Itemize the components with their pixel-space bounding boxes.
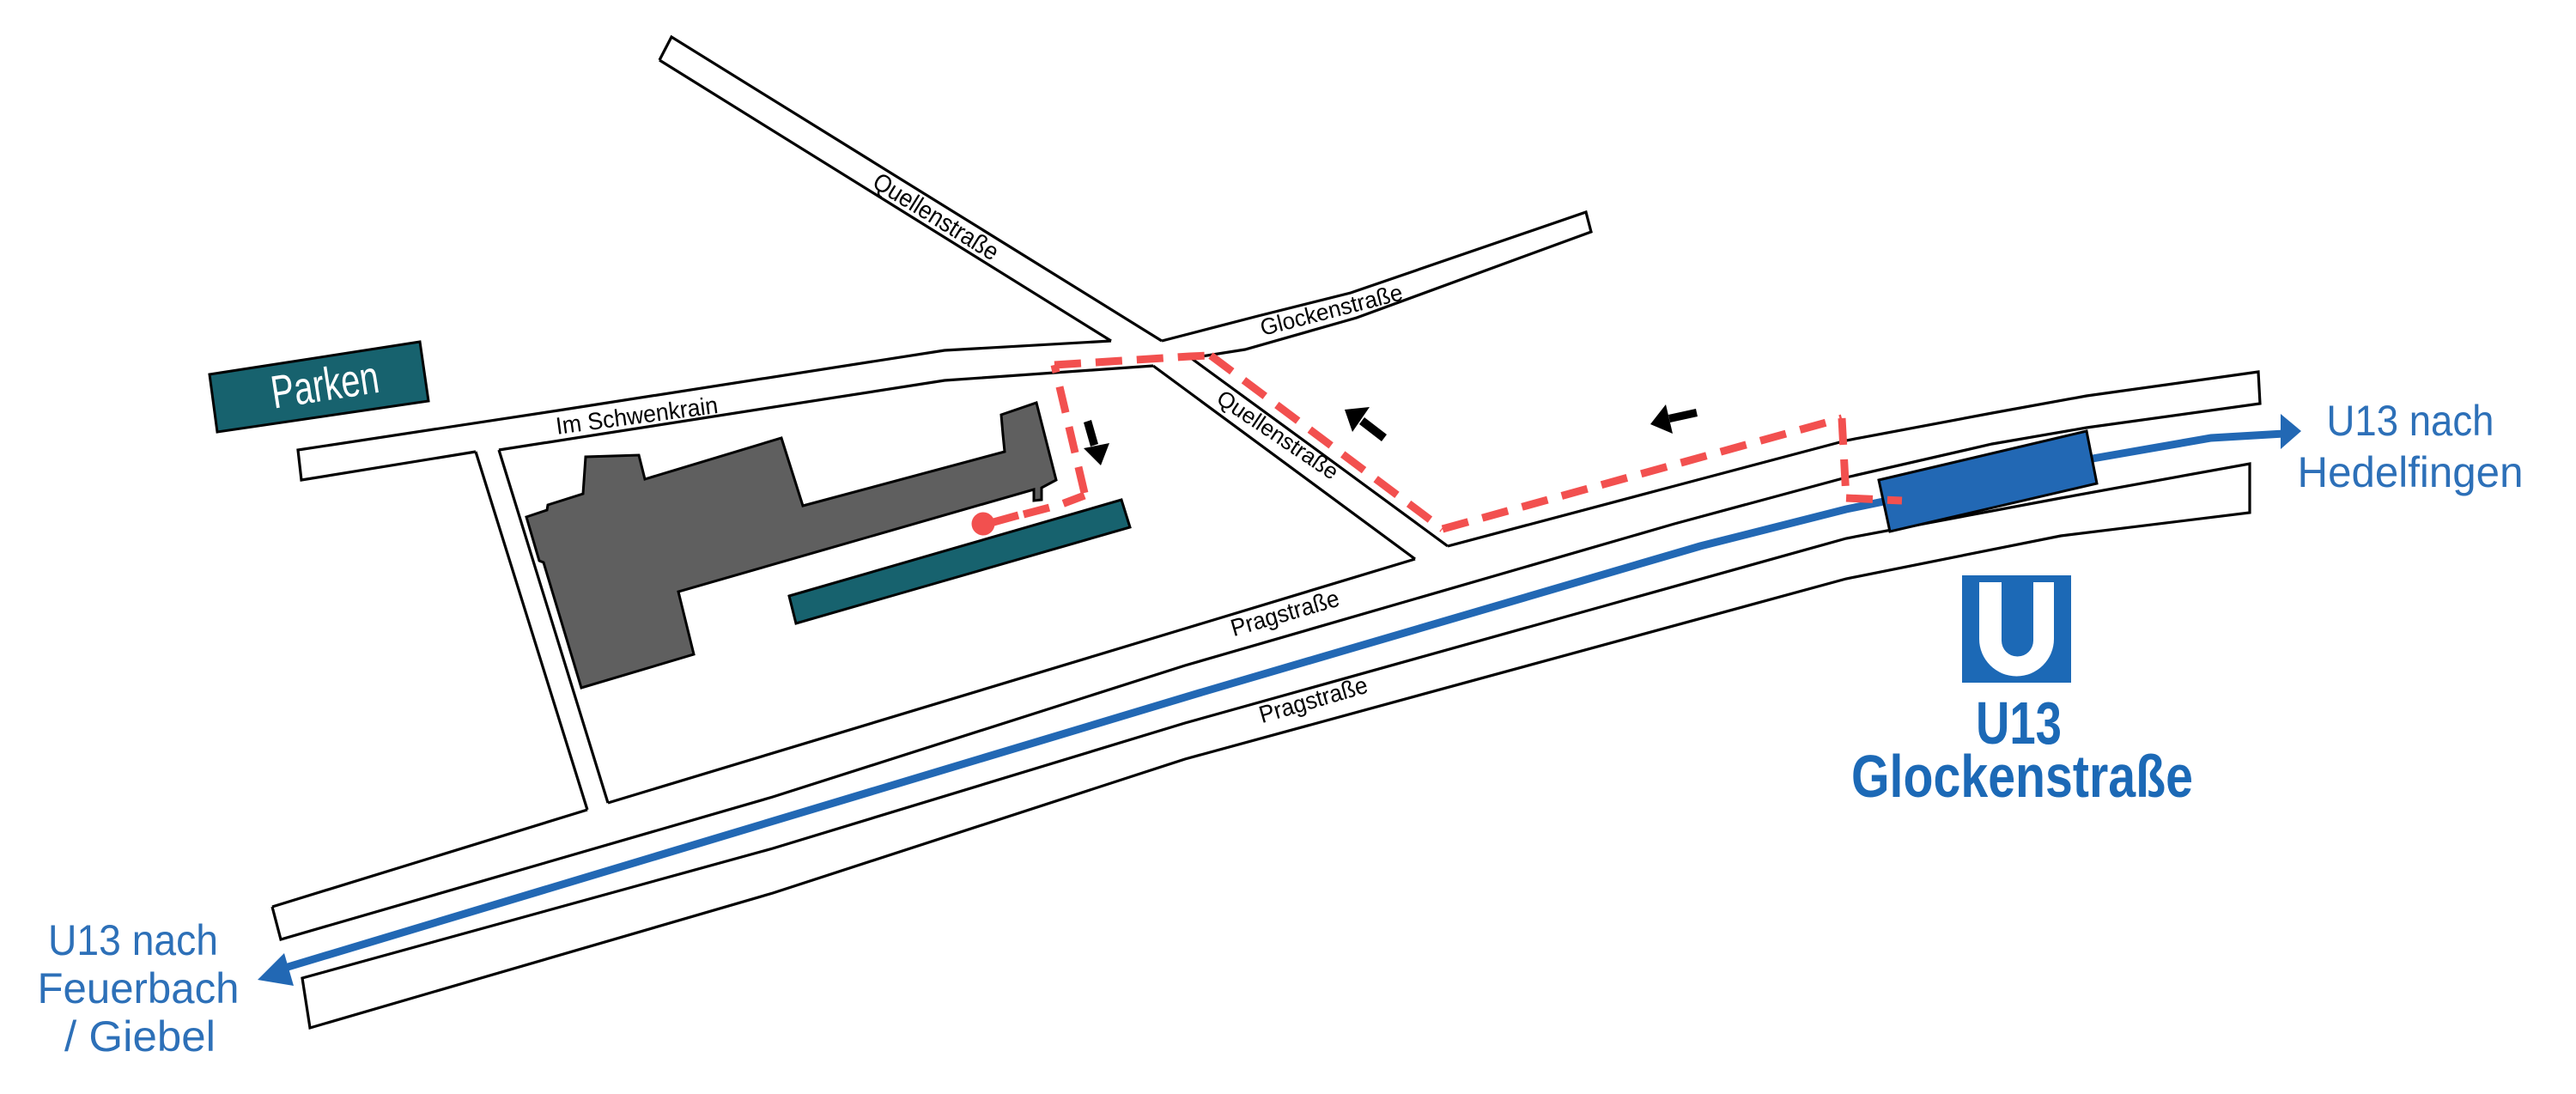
svg-text:Glockenstraße: Glockenstraße <box>1851 743 2193 810</box>
svg-text:Hedelfingen: Hedelfingen <box>2298 448 2524 496</box>
svg-text:/ Giebel: / Giebel <box>64 1012 216 1061</box>
svg-text:U13 nach: U13 nach <box>48 916 218 964</box>
svg-text:U13 nach: U13 nach <box>2327 397 2494 445</box>
svg-text:Feuerbach: Feuerbach <box>38 964 240 1012</box>
